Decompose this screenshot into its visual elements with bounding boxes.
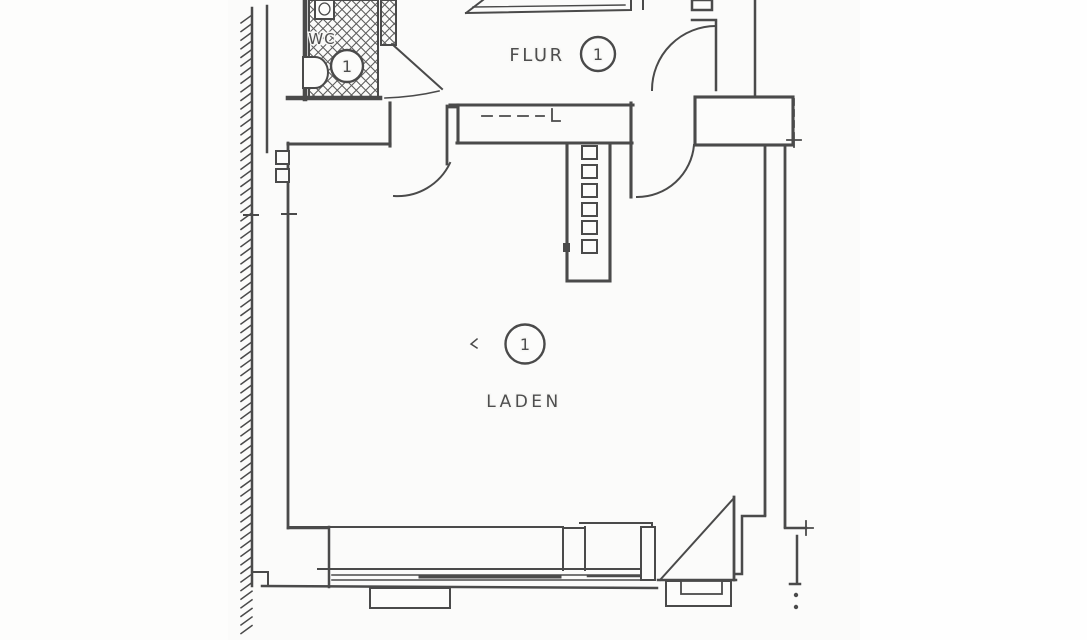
boundary-dot bbox=[794, 593, 798, 597]
glass-block bbox=[582, 165, 597, 178]
glass-block bbox=[582, 146, 597, 159]
flur-room-label: FLUR bbox=[509, 45, 564, 66]
glass-block bbox=[582, 240, 597, 253]
wall-niche-square bbox=[276, 169, 289, 182]
stub-wall-mark bbox=[563, 243, 570, 252]
paper-margin-left bbox=[0, 0, 228, 640]
boundary-dot bbox=[794, 605, 798, 609]
wc-room-label: WC bbox=[308, 30, 335, 48]
flur-number: 1 bbox=[593, 45, 603, 64]
laden-number: 1 bbox=[520, 335, 530, 354]
paper-margin-right bbox=[860, 0, 1087, 640]
top-right-wall-pier bbox=[695, 97, 793, 145]
shaft-wall-piece bbox=[692, 0, 712, 10]
door-jamb-pier bbox=[641, 527, 655, 580]
wc-number: 1 bbox=[342, 57, 352, 76]
floor-plan-svg: WC 1 FLUR 1 bbox=[0, 0, 1087, 640]
exterior-step-window bbox=[370, 588, 450, 608]
exterior-step-door-inner bbox=[681, 581, 722, 594]
wall-niche-square bbox=[276, 151, 289, 164]
wc-wall-hatch-strip bbox=[381, 0, 396, 45]
laden-room-label: LADEN bbox=[486, 392, 562, 412]
glass-block bbox=[582, 203, 597, 216]
toilet-icon bbox=[303, 57, 328, 88]
glass-block bbox=[582, 221, 597, 234]
glass-block bbox=[582, 184, 597, 197]
floor-plan-page: WC 1 FLUR 1 bbox=[0, 0, 1087, 640]
